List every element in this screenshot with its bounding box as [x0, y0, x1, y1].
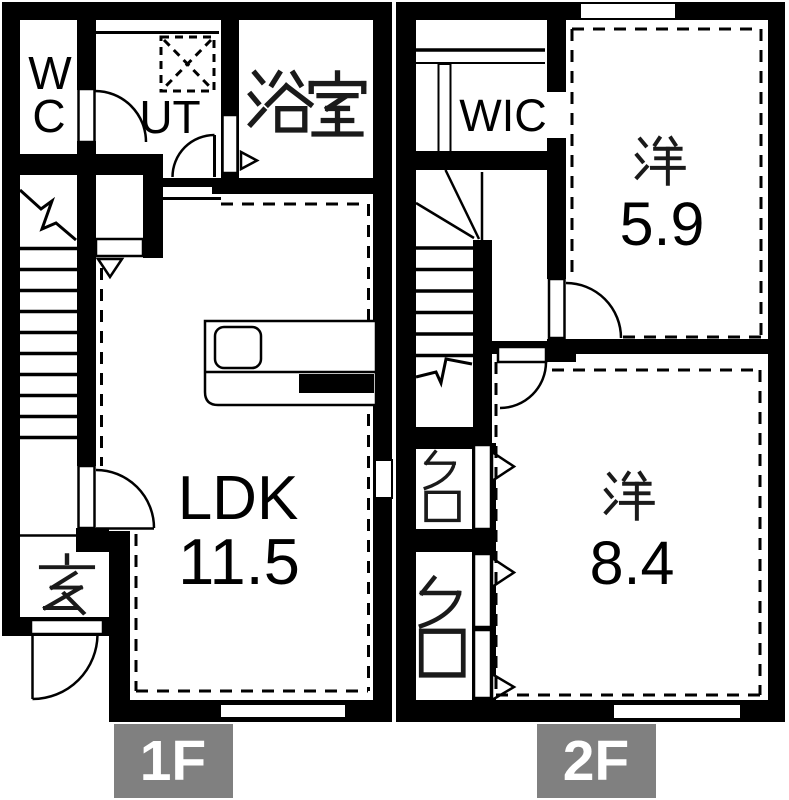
- svg-text:8.4: 8.4: [590, 529, 675, 597]
- svg-text:5.9: 5.9: [620, 190, 705, 258]
- svg-text:11.5: 11.5: [178, 525, 300, 598]
- svg-text:C: C: [32, 90, 65, 142]
- svg-text:WIC: WIC: [459, 90, 546, 141]
- svg-text:LDK: LDK: [178, 464, 299, 533]
- svg-text:UT: UT: [139, 91, 200, 143]
- svg-text:1F: 1F: [140, 729, 207, 793]
- svg-text:2F: 2F: [563, 729, 630, 793]
